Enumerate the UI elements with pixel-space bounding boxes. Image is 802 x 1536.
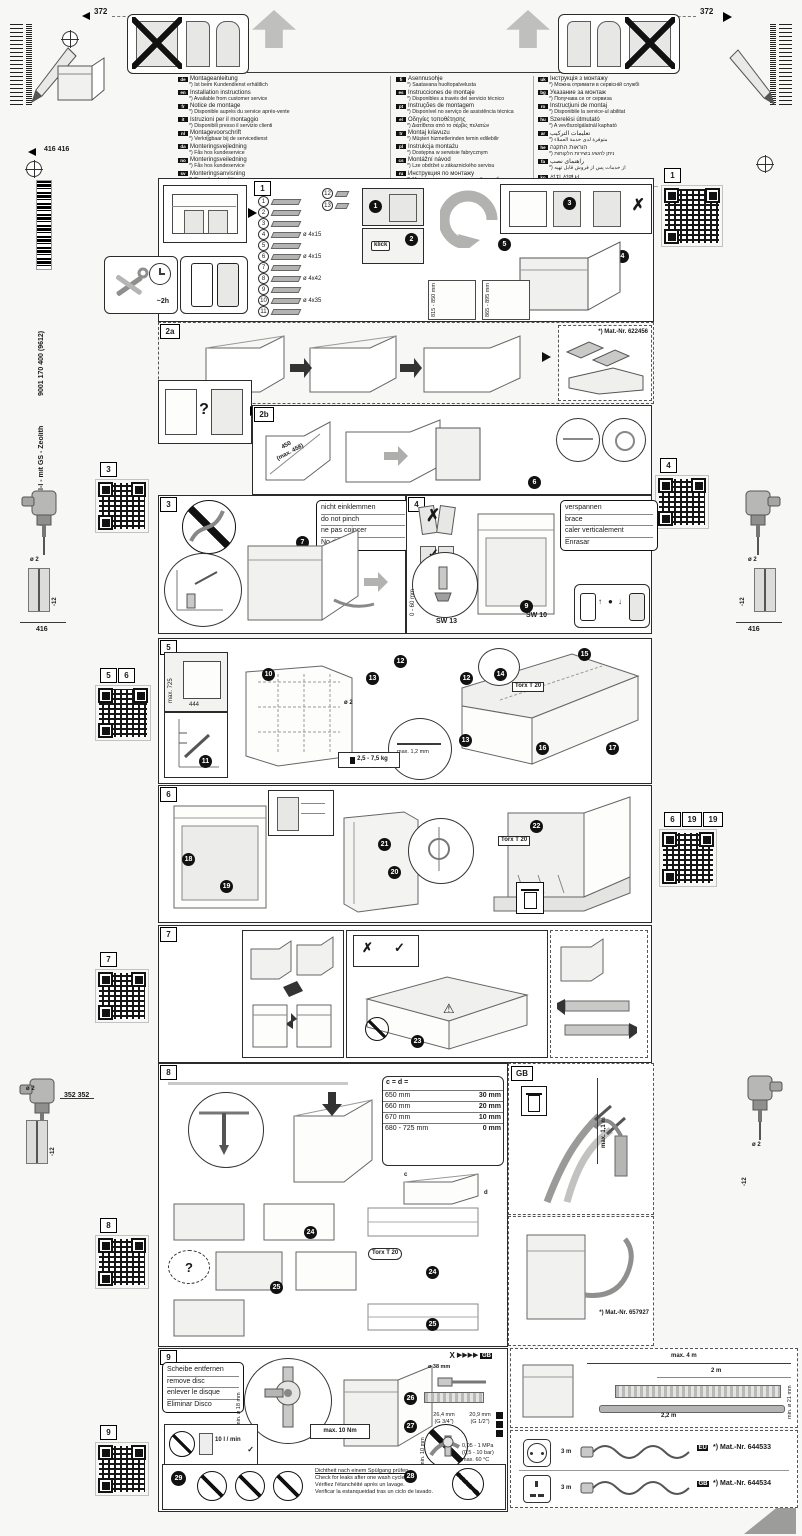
qr-code-step7 — [96, 970, 148, 1022]
column-divider — [390, 76, 391, 184]
max-hose-length: max. 1,1 m — [601, 1092, 609, 1148]
language-title: Instrukcja montażu — [408, 144, 458, 150]
language-code-badge: pt — [396, 104, 406, 109]
fast-forward-icon: ▶▶▶▶ — [457, 1352, 479, 1361]
language-code-badge: tr — [396, 131, 406, 136]
sw13-label: SW 13 — [436, 618, 457, 627]
step-badge-1: 1 — [369, 200, 382, 213]
drill-hole-detail — [754, 568, 776, 612]
niche-depth: 670 mm — [385, 1114, 410, 1121]
language-note: *) Можна отримати в сервісній службі — [549, 82, 658, 88]
part-icon — [271, 309, 302, 315]
qr-step-label-7: 7 — [100, 952, 117, 967]
cable-length: 3 m — [561, 1485, 571, 1493]
language-code-badge: ar — [538, 131, 548, 136]
min-dia-21: min. ø 21 mm — [787, 1379, 794, 1419]
range-0-60: 0 - 60 mm — [410, 576, 418, 616]
note-line: caler verticalement — [565, 526, 653, 538]
language-code-badge: fr — [178, 104, 188, 109]
part-number: 5 — [258, 240, 269, 251]
language-entry: huSzerelési útmutató *) A vevőszolgálatn… — [538, 117, 658, 129]
language-code-badge: he — [538, 145, 548, 150]
registration-mark-right — [757, 156, 773, 172]
language-code-badge: nl — [178, 131, 188, 136]
no-extension-icon — [452, 1468, 484, 1500]
part-row: 9 — [258, 284, 358, 295]
step2a-label: 2a — [160, 324, 180, 339]
language-entry: trMontaj kılavuzu *) Müşteri hizmetlerin… — [396, 130, 528, 142]
brace-note: verspannenbracecaler verticalementEnrasa… — [560, 500, 658, 551]
divider — [247, 72, 562, 73]
part-number: 3 — [258, 218, 269, 229]
step7-middle-panel: ✗ ✓ ⚠ 23 — [346, 930, 548, 1058]
qr-code-step3 — [96, 480, 148, 532]
drill-depth: -12 — [742, 1156, 750, 1186]
note-line: Scheibe entfernen — [167, 1365, 239, 1377]
step-badge-23: 23 — [411, 1035, 424, 1048]
table-row: 650 mm 30 mm — [383, 1090, 503, 1101]
part-number: 8 — [258, 273, 269, 284]
step8-row2 — [212, 1248, 362, 1294]
phone-icon — [580, 593, 596, 621]
language-note: *) Ist beim Kundendienst erhältlich — [189, 82, 384, 88]
phone-icon — [629, 593, 645, 621]
step1-image2: 2 klick — [362, 228, 424, 264]
offset-value: 10 mm — [479, 1114, 501, 1121]
print-ruler-top-left — [10, 24, 23, 106]
language-code-badge: hu — [538, 117, 548, 122]
qr-step-label-5: 5 — [100, 668, 117, 683]
dim-max-4m: max. 4 m — [671, 1353, 697, 1361]
part-number: 6 — [258, 251, 269, 262]
language-note: *) Disponible auprès du service après-ve… — [189, 109, 384, 115]
step-badge-28: 28 — [404, 1470, 417, 1483]
gb-label: GB — [511, 1066, 533, 1081]
table-row: 660 mm 20 mm — [383, 1101, 503, 1112]
dim-865-895: 865 - 895 mm — [485, 283, 492, 317]
step-badge-12: 12 — [394, 655, 407, 668]
part-number: 11 — [258, 306, 269, 317]
no-bucket-icon — [169, 1431, 195, 1457]
drill-diameter: ø 2 — [30, 557, 39, 565]
language-code-badge: cs — [396, 158, 406, 163]
qr-code-step6-19 — [660, 830, 716, 886]
region-badge-gb: GB — [697, 1481, 709, 1487]
part-number: 2 — [258, 207, 269, 218]
step-badge-27: 27 — [404, 1420, 417, 1433]
step-badge-3: 3 — [563, 197, 576, 210]
step-pointer-icon — [248, 208, 257, 218]
part-icon — [271, 254, 302, 260]
step-badge-19: 19 — [220, 880, 233, 893]
app-box — [180, 256, 248, 314]
sync-dot: ● — [608, 597, 613, 607]
x-mark-icon: ✗ — [362, 940, 373, 956]
flow-check-box: 10 l / min ✓ — [164, 1424, 258, 1466]
qr-step-label-4: 4 — [660, 458, 677, 473]
gb-drain-box: *) Mat.-Nr. 657927 — [508, 1216, 654, 1346]
qr-code-step9 — [96, 1443, 148, 1495]
dim-line — [587, 1363, 791, 1364]
sw10-label: SW 10 — [526, 612, 547, 621]
drill-icon — [20, 487, 70, 559]
table-row: 680 - 725 mm 0 mm — [383, 1123, 503, 1134]
language-entry: daMonteringsvejledning *) Fås hos kundes… — [178, 144, 384, 156]
panel-options-box-right — [558, 14, 680, 74]
flow-rate: 10 l / min — [215, 1437, 241, 1445]
language-note: *) Saatavana huoltopalvelusta — [407, 82, 528, 88]
step7-right-panel — [550, 930, 648, 1058]
language-entry: roInstrucţiuni de montaj *) Disponibile … — [538, 103, 658, 115]
language-title: Указание за монтаж — [550, 90, 606, 96]
detail-circle — [556, 418, 600, 462]
dim-372-right: 372 — [700, 7, 713, 17]
mini-dishwasher-sketch — [52, 52, 106, 104]
language-title: Instrucciones de montaje — [408, 90, 475, 96]
step-badge-24: 24 — [304, 1226, 317, 1239]
step-badge-16: 16 — [536, 742, 549, 755]
prohibited-icon — [235, 1471, 265, 1501]
language-code-badge: da — [178, 144, 188, 149]
screw-detail-circle — [188, 1092, 264, 1168]
drill-diameter: ø 2 — [752, 1142, 761, 1150]
dishwasher-rear — [517, 1359, 581, 1421]
part-number: 12 — [322, 188, 333, 199]
step4-dishwasher — [470, 508, 562, 620]
part-icon — [271, 221, 302, 227]
niche-depth: 680 - 725 mm — [385, 1125, 428, 1132]
step2a-mat-box: *) Mat.-Nr. 622456 — [558, 325, 652, 401]
check-icon: ✓ — [394, 940, 405, 956]
language-code-badge: ru — [396, 171, 406, 176]
part-screw-spec: ø 4x42 — [303, 276, 321, 282]
panel-weight: 2,5 - 7,5 kg — [338, 752, 400, 768]
language-code-badge: el — [396, 117, 406, 122]
klick-label: klick — [371, 241, 390, 251]
language-note: *) Получава се от сервиза — [549, 96, 658, 102]
region-badge-eu: EU — [697, 1445, 708, 1451]
dia-38: ø 38 mm — [428, 1364, 450, 1371]
step7-label: 7 — [160, 927, 177, 942]
column-divider — [533, 76, 534, 184]
torx-label: Torx T 20 — [368, 1248, 402, 1260]
dim-2m: 2 m — [711, 1368, 721, 1376]
language-note: *) Disponibile la service-ul abilitat — [549, 109, 658, 115]
part-row: 13 — [322, 200, 348, 211]
detail-circle — [602, 418, 646, 462]
part-row: 8 ø 4x42 — [258, 273, 358, 284]
smooth-hose — [599, 1405, 785, 1413]
language-entry: frNotice de montage *) Disponible auprès… — [178, 103, 384, 115]
part-row: 6 ø 4x15 — [258, 251, 358, 262]
part-icon — [271, 298, 302, 304]
language-code-badge: es — [396, 90, 406, 95]
print-ruler-top-right — [779, 24, 792, 106]
language-entry: csMontážní návod *) Lze obdržet u zákazn… — [396, 157, 528, 169]
language-entry: deMontageanleitung *) Ist beim Kundendie… — [178, 76, 384, 88]
registration-mark-top — [62, 31, 78, 47]
prohibited-icon — [197, 1471, 227, 1501]
hose-length-box: max. 4 m 2 m 2,2 m min. ø 21 mm — [510, 1348, 798, 1428]
qr-step-label-9: 9 — [100, 1425, 117, 1440]
panel-options-box-left — [127, 14, 249, 74]
offset-value: 0 mm — [483, 1125, 501, 1132]
g34-spec: 26,4 mm(G 3/4") — [426, 1412, 462, 1426]
prohibited-icon — [365, 1017, 389, 1041]
niche-depth: 660 mm — [385, 1103, 410, 1110]
dim-372-left: 372 — [94, 7, 107, 17]
cable-length: 3 m — [561, 1449, 571, 1457]
language-code-badge: de — [178, 77, 188, 82]
pliers-cut-hose — [537, 1090, 647, 1208]
qr-step-label-8: 8 — [100, 1218, 117, 1233]
part-icon — [271, 210, 302, 216]
up-arrow-icon — [506, 10, 550, 48]
prohibited-icon — [273, 1471, 303, 1501]
language-entry: ukІнструкція з монтажу *) Можна отримати… — [538, 76, 658, 88]
cable-icon — [579, 1439, 691, 1465]
note-line: nicht einklemmen — [321, 503, 405, 515]
up-arrow-icon — [252, 10, 296, 48]
qr-code-step8 — [96, 1236, 148, 1288]
part-row: 10 ø 4x35 — [258, 295, 358, 306]
note-line: enlever le disque — [167, 1388, 239, 1400]
step8-row3 — [168, 1296, 498, 1340]
part-row: 11 — [258, 306, 358, 317]
step-badge-13b: 13 — [459, 734, 472, 747]
mat-nr-644534: *) Mat.-Nr. 644534 — [713, 1480, 771, 1489]
note-line: Enrasar — [565, 538, 653, 549]
drill-depth: -12 — [740, 574, 748, 606]
hinge-detail-circle — [408, 818, 474, 884]
step1-door-options: 3 ✗ — [500, 184, 652, 234]
no-kink-icon — [182, 500, 236, 554]
language-note: *) Διατίθεται από το σέρβις πελατών — [407, 123, 528, 129]
part-icon — [271, 232, 302, 238]
language-entry: arتعليمات التركيب *) متوفرة لدى خدمة الع… — [538, 130, 658, 143]
mat-nr-622456: *) Mat.-Nr. 622456 — [598, 329, 648, 337]
qr-code-step5-6 — [96, 686, 150, 740]
step-badge-11: 11 — [199, 755, 212, 768]
note-line: remove disc — [167, 1377, 239, 1389]
step1-thumb — [163, 185, 247, 243]
x-mark-icon: ✗ — [632, 195, 645, 215]
part-screw-spec: ø 4x15 — [303, 232, 321, 238]
step1-image1: 1 — [362, 188, 424, 226]
max-gap-label: max. 1,2 mm — [397, 749, 429, 756]
worktop-line — [168, 1082, 348, 1085]
language-title: Istruzioni per il montaggio — [190, 117, 258, 123]
step-badge-2: 2 — [405, 233, 418, 246]
qr-step-label-3: 3 — [100, 462, 117, 477]
phone-icon — [191, 263, 213, 307]
language-code-badge: bg — [538, 90, 548, 95]
step8-label: 8 — [160, 1065, 177, 1080]
language-list-col2: fiAsennusohje *) Saatavana huoltopalvelu… — [396, 76, 528, 184]
drill-depth: -12 — [52, 574, 60, 606]
check-icon: ✓ — [247, 1445, 254, 1455]
rotate-arrow-icon — [440, 190, 498, 248]
question-mark: ? — [195, 399, 213, 421]
niche-variant-b: 865 - 895 mm — [482, 280, 530, 320]
dim-815-850: 815 - 850 mm — [431, 283, 438, 317]
language-note: *) Disponibili presso il servizio client… — [189, 123, 384, 129]
language-title: راهنمای نصب — [550, 158, 584, 165]
weight-icon — [350, 757, 355, 764]
dia-2-label: ø 2 — [344, 700, 353, 708]
step-badge-26: 26 — [404, 1392, 417, 1405]
language-code-badge: uk — [538, 77, 548, 82]
part-icon — [335, 191, 350, 197]
step2b-insert — [340, 414, 500, 488]
part-row: 3 — [258, 218, 358, 229]
note-line: verspannen — [565, 503, 653, 515]
language-code-badge: no — [178, 158, 188, 163]
drill-icon — [732, 487, 782, 559]
language-code-badge: ro — [538, 104, 548, 109]
dim-arrow-left — [28, 148, 36, 156]
note-line: Eliminar Disco — [167, 1400, 239, 1411]
qr-code-step1 — [662, 186, 722, 246]
language-note: *) از خدمات پس از فروش قابل تهیه — [549, 165, 658, 171]
socket-gb-icon — [523, 1475, 551, 1503]
part-screw-spec: ø 4x15 — [303, 254, 321, 260]
language-note: *) Lze obdržet u zákaznického servisu — [407, 163, 528, 169]
drill-depth: -12 — [50, 1124, 58, 1156]
language-note: *) Dostępna w serwisie fabrycznym — [407, 150, 528, 156]
torque-label: max. 10 Nm — [310, 1424, 370, 1439]
wrong-alignment-icon: ✗ — [416, 500, 456, 538]
dim-416: 416 — [36, 626, 48, 635]
question-box: ? — [158, 380, 252, 444]
dim-416: 416 — [748, 626, 760, 635]
part-icon — [271, 276, 302, 282]
min-10-label: min. 10 mm — [420, 1432, 427, 1466]
divider — [519, 1470, 789, 1471]
cross-out-mark — [132, 17, 182, 69]
x-mark-icon: ✗ — [426, 506, 440, 526]
step-badge-15: 15 — [578, 648, 591, 661]
part-row: 7 — [258, 262, 358, 273]
step5-mark-box: 11 — [164, 712, 228, 778]
foot-detail-circle — [164, 553, 242, 627]
step3-push-in — [238, 520, 398, 626]
language-title: הוראות התקנה — [550, 145, 587, 151]
fitting-sketch — [432, 1372, 492, 1392]
label-d: d — [484, 1190, 488, 1198]
x-mark: X — [450, 1351, 455, 1361]
hose-type-badges — [496, 1412, 503, 1437]
step-badge-25b: 25 — [426, 1318, 439, 1331]
language-code-badge: pl — [396, 144, 406, 149]
part-icon — [335, 203, 350, 209]
foot-adjust-circle — [412, 552, 478, 618]
part-number: 9 — [258, 284, 269, 295]
step6-dims-thumb — [268, 790, 334, 836]
step-badge-14: 14 — [494, 668, 507, 681]
app-sync-box: ↑ ● ↓ — [574, 584, 650, 628]
tap-icon — [436, 1432, 460, 1460]
barcode — [36, 180, 52, 270]
duration-label: ~2h — [157, 298, 169, 307]
bucket-icon — [199, 1433, 213, 1455]
not-gb-banner: X ▶▶▶▶ GB — [436, 1350, 506, 1362]
torx-label: Torx T 20 — [498, 836, 530, 846]
dim-line — [20, 622, 66, 623]
language-title: Monteringsanvisning — [190, 171, 245, 177]
part-icon — [271, 265, 302, 271]
qr-step-label-6: 6 — [664, 812, 681, 827]
socket-eu-icon — [523, 1439, 551, 1467]
step1-label: 1 — [254, 181, 271, 196]
g12-spec: 20,9 mm(G 1/2") — [462, 1412, 498, 1426]
language-title: Szerelési útmutató — [550, 117, 600, 123]
mat-nr-644533: *) Mat.-Nr. 644533 — [713, 1444, 771, 1453]
drill-diameter: ø 2 — [748, 557, 757, 565]
qr-step-label-19b: 19 — [703, 812, 723, 827]
step-badge-12b: 12 — [460, 672, 473, 685]
registration-mark-left — [26, 161, 42, 177]
pencil-icon — [722, 48, 778, 108]
language-list-col1: deMontageanleitung *) Ist beim Kundendie… — [178, 76, 384, 184]
part-screw-spec: ø 4x35 — [303, 298, 321, 304]
language-code-badge: fa — [538, 159, 548, 164]
drill-diameter: ø 2 — [26, 1086, 35, 1094]
step-badge-20: 20 — [388, 866, 401, 879]
language-entry: bgУказание за монтаж *) Получава се от с… — [538, 90, 658, 102]
part-number: 4 — [258, 229, 269, 240]
language-entry: plInstrukcja montażu *) Dostępna w serwi… — [396, 144, 528, 156]
step-badge-10: 10 — [262, 668, 275, 681]
qr-step-label-19a: 19 — [682, 812, 702, 827]
remove-disc-note: Scheibe entfernenremove discenlever le d… — [162, 1362, 244, 1413]
part-row: 4 ø 4x15 — [258, 229, 358, 240]
x-check-thumb: ✗ ✓ — [353, 935, 419, 967]
language-code-badge: fi — [396, 77, 406, 82]
language-entry: esInstrucciones de montaje *) Disponible… — [396, 90, 528, 102]
qr-step-label-1: 1 — [664, 168, 681, 183]
qr-code-step4 — [656, 476, 708, 528]
part-row: 5 — [258, 240, 358, 251]
min-dia-18: min. ø 18 mm — [236, 1378, 243, 1426]
language-title: Installation instructions — [190, 90, 251, 96]
dim-line — [736, 622, 782, 623]
language-note: *) Disponibles a través del servicio téc… — [407, 96, 528, 102]
language-entry: fiAsennusohje *) Saatavana huoltopalvelu… — [396, 76, 528, 88]
language-entry: itIstruzioni per il montaggio *) Disponi… — [178, 117, 384, 129]
doc-number: 9001 170 400 (9612) — [38, 331, 45, 396]
language-note: *) Fås hos kundeservice — [189, 163, 384, 169]
language-entry: nlMontagevoorschrift *) Verkrijgbaar bij… — [178, 130, 384, 142]
language-title: Инструкция по монтажу — [408, 171, 474, 177]
part-icon — [271, 243, 302, 249]
offset-value: 30 mm — [479, 1092, 501, 1099]
gb-box: GB max. 1,1 m — [508, 1063, 654, 1215]
language-entry: ptInstruções de montagem *) Disponível n… — [396, 103, 528, 115]
language-note: *) Fås hos kundeservice — [189, 150, 384, 156]
step-badge-29: 29 — [171, 1471, 186, 1486]
step-badge-18: 18 — [182, 853, 195, 866]
language-entry: enInstallation instructions *) Available… — [178, 90, 384, 102]
part-number: 1 — [258, 196, 269, 207]
step-badge-17: 17 — [606, 742, 619, 755]
phone-icon — [217, 263, 239, 307]
language-code-badge: it — [178, 117, 188, 122]
language-entry: elΟδηγίες τοποθέτησης *) Διατίθεται από … — [396, 117, 528, 129]
step-badge-6: 6 — [528, 476, 541, 489]
part-row: 12 — [322, 188, 348, 199]
dim-arrow-left — [82, 12, 90, 20]
